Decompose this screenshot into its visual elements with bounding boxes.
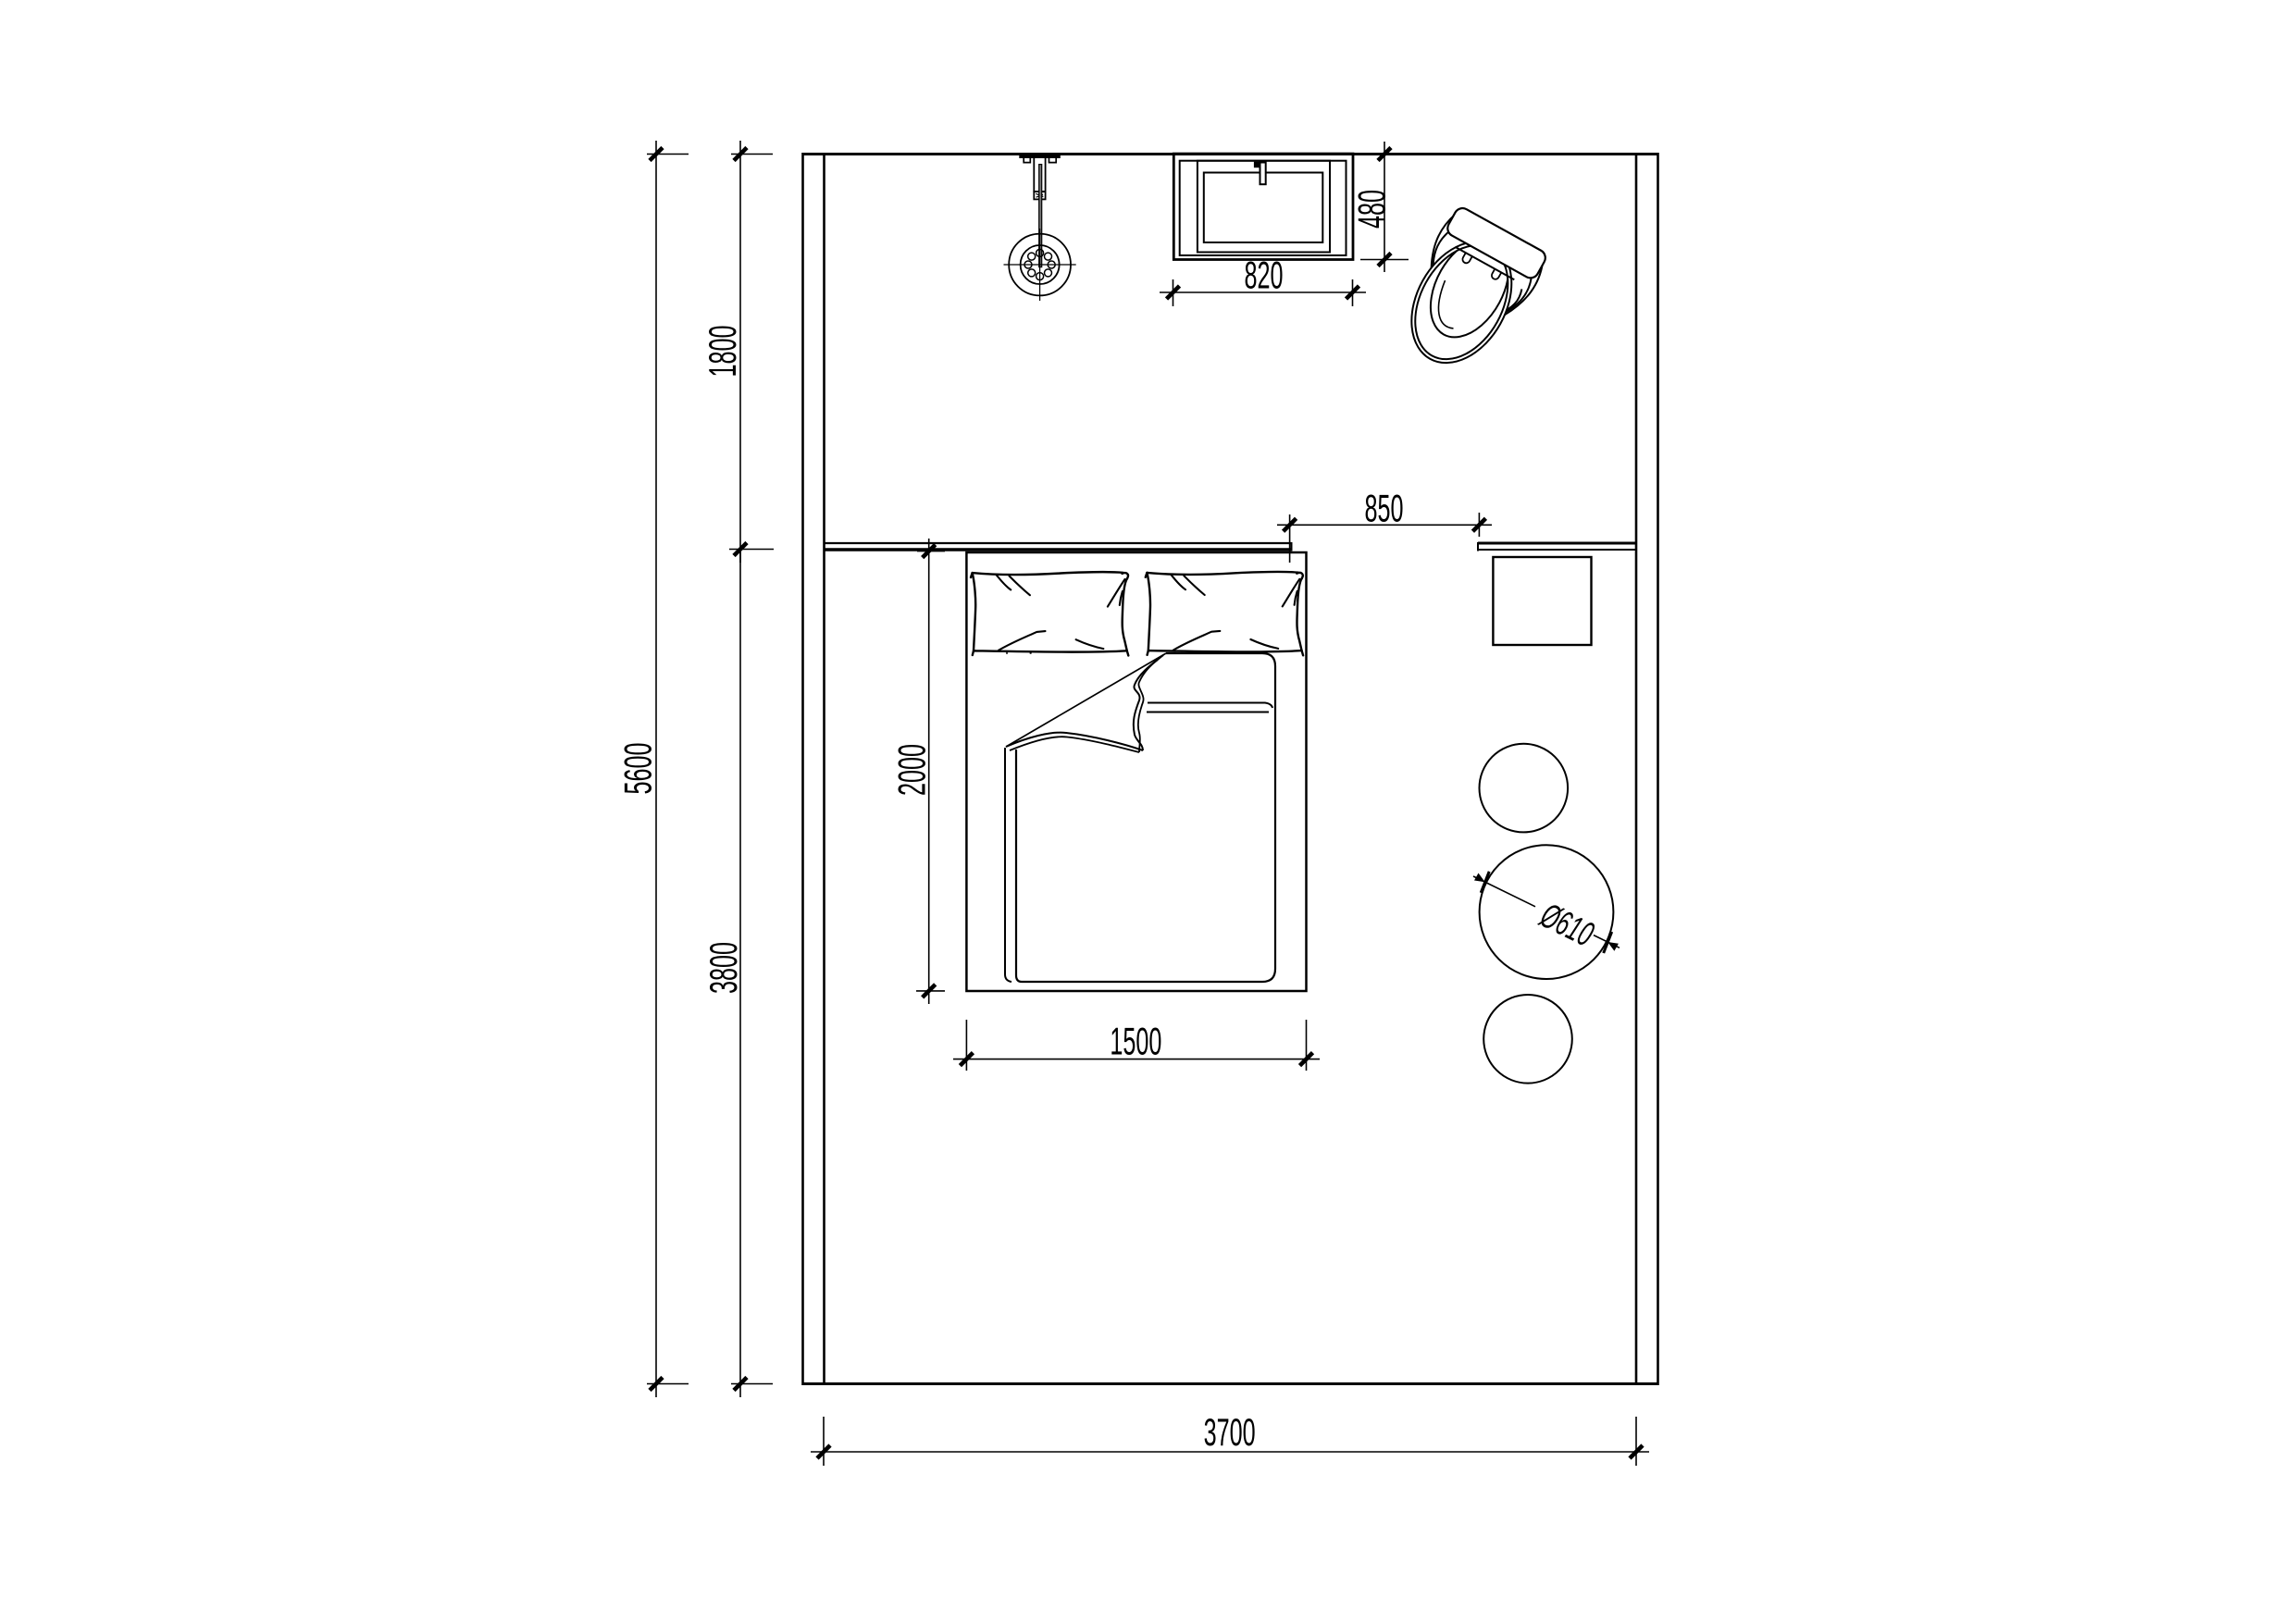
svg-text:1800: 1800	[701, 325, 744, 377]
svg-text:480: 480	[1351, 190, 1394, 229]
svg-text:3700: 3700	[1204, 1411, 1256, 1454]
svg-text:3800: 3800	[702, 942, 745, 994]
svg-text:1500: 1500	[1110, 1021, 1161, 1063]
svg-text:850: 850	[1364, 488, 1403, 530]
svg-text:820: 820	[1244, 254, 1283, 297]
svg-text:5600: 5600	[617, 742, 660, 794]
svg-text:2000: 2000	[891, 744, 934, 796]
